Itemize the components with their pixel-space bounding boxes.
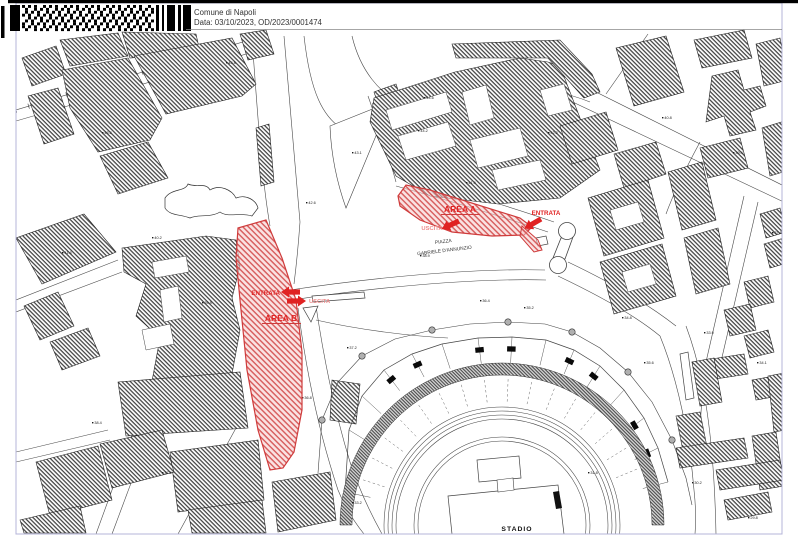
svg-text:37.6: 37.6 (164, 471, 171, 475)
piazza-label-line2: GABRIELE D'ANNUNZIO (417, 245, 472, 258)
svg-text:42.2: 42.2 (550, 131, 557, 135)
svg-text:34.8: 34.8 (624, 316, 631, 320)
uscita-b-label: USCITA (309, 299, 331, 305)
area-a-label: AREA A (444, 204, 476, 214)
svg-text:37.8: 37.8 (774, 231, 781, 235)
stadio-label: STADIO (501, 526, 532, 533)
svg-text:44.6: 44.6 (426, 96, 433, 100)
piazza-label-line1: PIAZZA (435, 238, 453, 246)
entrata-b-label: ENTRATA (251, 290, 280, 297)
svg-text:33.9: 33.9 (706, 331, 713, 335)
svg-text:29.8: 29.8 (750, 516, 757, 520)
svg-text:39.8: 39.8 (204, 301, 211, 305)
restricted-areas-overlay: AREA A AREA B ENTRATA USCITA ENTRATA USC… (236, 185, 561, 470)
svg-text:44.2: 44.2 (420, 129, 427, 133)
svg-text:43.8: 43.8 (228, 61, 235, 65)
svg-text:30.2: 30.2 (694, 481, 701, 485)
svg-text:35.6: 35.6 (646, 361, 653, 365)
svg-text:35.2: 35.2 (526, 306, 533, 310)
svg-text:43.1: 43.1 (354, 151, 361, 155)
city-map: 43.843.144.241.942.640.237.236.835.234.8… (0, 0, 799, 554)
area-b-zone (236, 220, 302, 470)
svg-text:40.8: 40.8 (664, 116, 671, 120)
cadastral-map-page: 43.843.144.241.942.640.237.236.835.234.8… (0, 0, 799, 554)
svg-text:36.8: 36.8 (304, 396, 311, 400)
edge-registration-mark (1, 6, 5, 38)
svg-text:36.4: 36.4 (482, 299, 489, 303)
stadium-goal-box (477, 456, 521, 482)
header-band (17, 4, 781, 28)
svg-text:37.2: 37.2 (349, 346, 356, 350)
outline-buildings-layer (165, 102, 390, 218)
svg-text:38.4: 38.4 (94, 421, 101, 425)
piazza-label-group: PIAZZA GABRIELE D'ANNUNZIO (416, 236, 472, 258)
header-subtitle: Data: 03/10/2023, OD/2023/0001474 (194, 18, 323, 27)
top-border-bar (8, 0, 798, 3)
svg-text:34.1: 34.1 (759, 361, 766, 365)
header-title: Comune di Napoli (194, 8, 256, 17)
uscita-a-label: USCITA (421, 226, 443, 232)
entrata-a-label: ENTRATA (532, 210, 561, 217)
stadium-goal-notch (497, 478, 514, 492)
svg-text:42.6: 42.6 (308, 201, 315, 205)
svg-text:33.2: 33.2 (354, 501, 361, 505)
svg-text:31.8: 31.8 (590, 471, 597, 475)
area-b-label: AREA B (265, 313, 297, 323)
svg-text:41.9: 41.9 (468, 181, 475, 185)
svg-text:39.4: 39.4 (735, 151, 742, 155)
svg-text:40.2: 40.2 (154, 236, 161, 240)
svg-text:45.2: 45.2 (104, 131, 111, 135)
svg-text:41.6: 41.6 (64, 251, 71, 255)
